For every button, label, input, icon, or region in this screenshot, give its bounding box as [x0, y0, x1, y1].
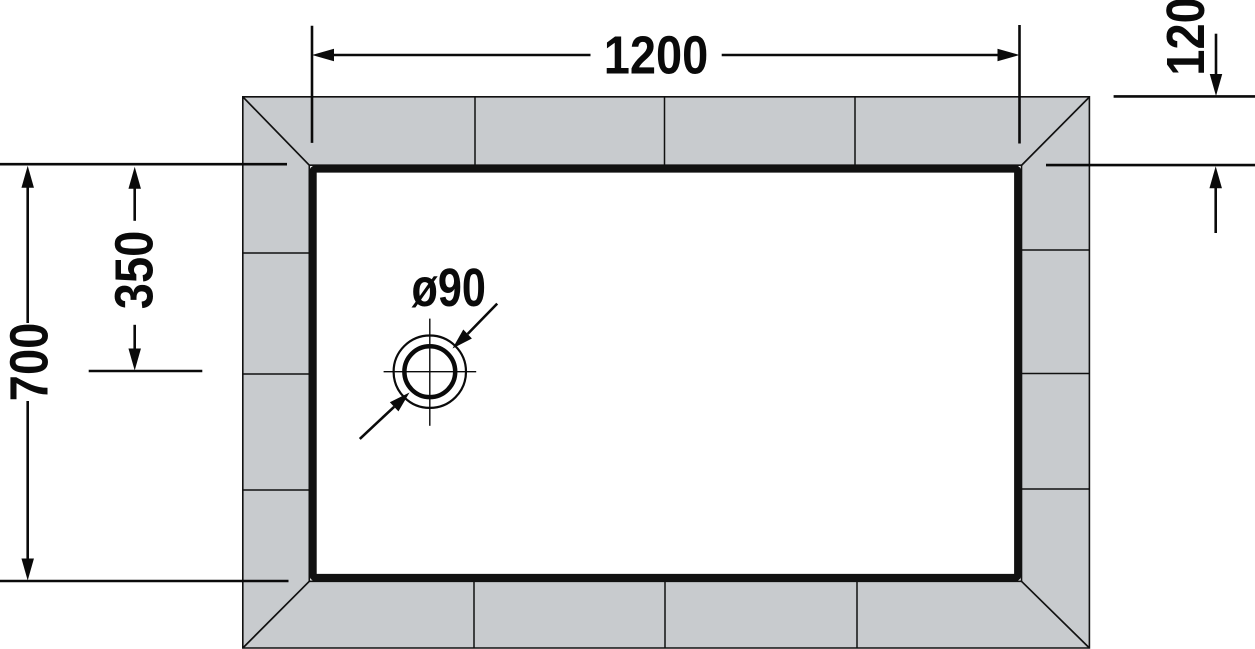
svg-text:1200: 1200 — [604, 24, 709, 85]
svg-text:700: 700 — [0, 323, 59, 401]
svg-text:ø90: ø90 — [412, 258, 486, 318]
svg-text:350: 350 — [103, 231, 164, 309]
svg-text:120: 120 — [1155, 0, 1216, 76]
